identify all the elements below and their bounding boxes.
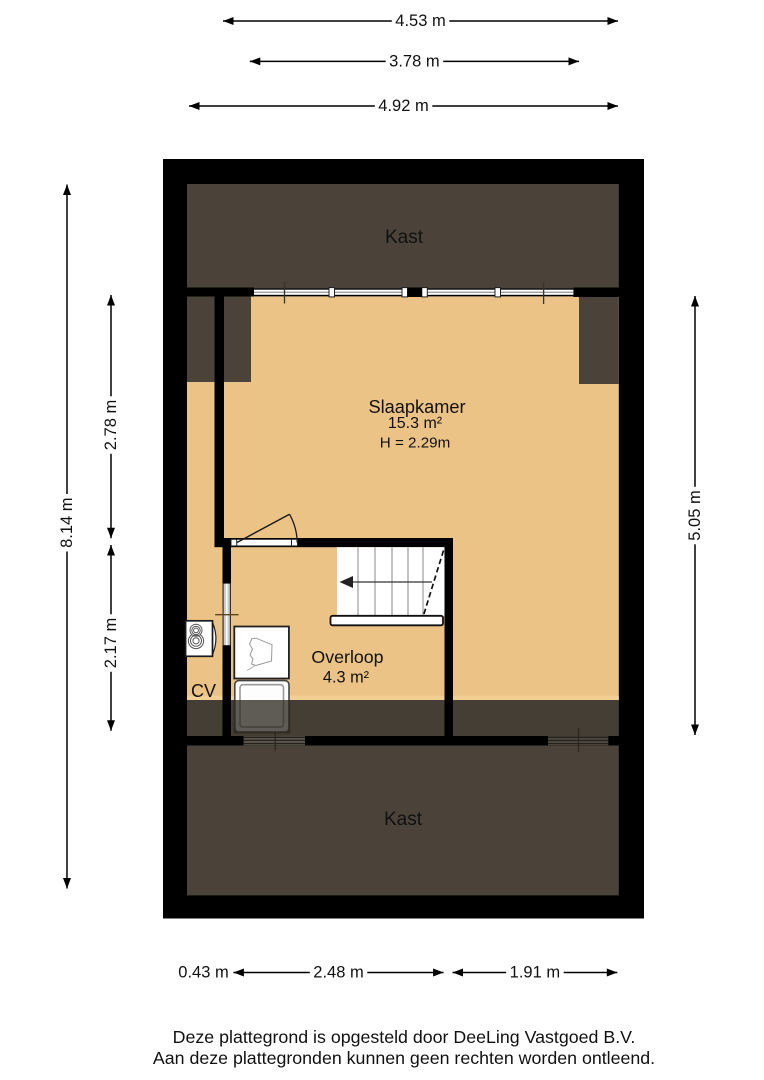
- svg-text:5.05 m: 5.05 m: [686, 490, 704, 540]
- svg-text:Kast: Kast: [384, 809, 423, 830]
- svg-text:H = 2.29m: H = 2.29m: [380, 435, 451, 452]
- svg-text:2.17 m: 2.17 m: [102, 618, 120, 668]
- svg-text:1.91 m: 1.91 m: [510, 964, 560, 982]
- svg-text:CV: CV: [191, 681, 216, 701]
- svg-text:Slaapkamer: Slaapkamer: [368, 397, 465, 417]
- svg-text:0.43 m: 0.43 m: [178, 964, 228, 982]
- svg-text:Aan deze plattegronden kunnen: Aan deze plattegronden kunnen geen recht…: [153, 1048, 655, 1068]
- svg-text:Kast: Kast: [385, 227, 424, 248]
- svg-text:4.3 m²: 4.3 m²: [323, 669, 370, 687]
- svg-text:Overloop: Overloop: [311, 647, 383, 667]
- svg-text:4.53 m: 4.53 m: [395, 12, 445, 30]
- svg-text:2.78 m: 2.78 m: [102, 400, 120, 450]
- svg-text:15.3 m²: 15.3 m²: [388, 415, 443, 432]
- svg-text:8.14 m: 8.14 m: [58, 497, 76, 547]
- svg-text:2.48 m: 2.48 m: [313, 964, 363, 982]
- svg-text:3.78 m: 3.78 m: [389, 52, 439, 70]
- svg-text:Deze plattegrond is opgesteld: Deze plattegrond is opgesteld door DeeLi…: [173, 1027, 636, 1047]
- svg-text:4.92 m: 4.92 m: [378, 97, 428, 115]
